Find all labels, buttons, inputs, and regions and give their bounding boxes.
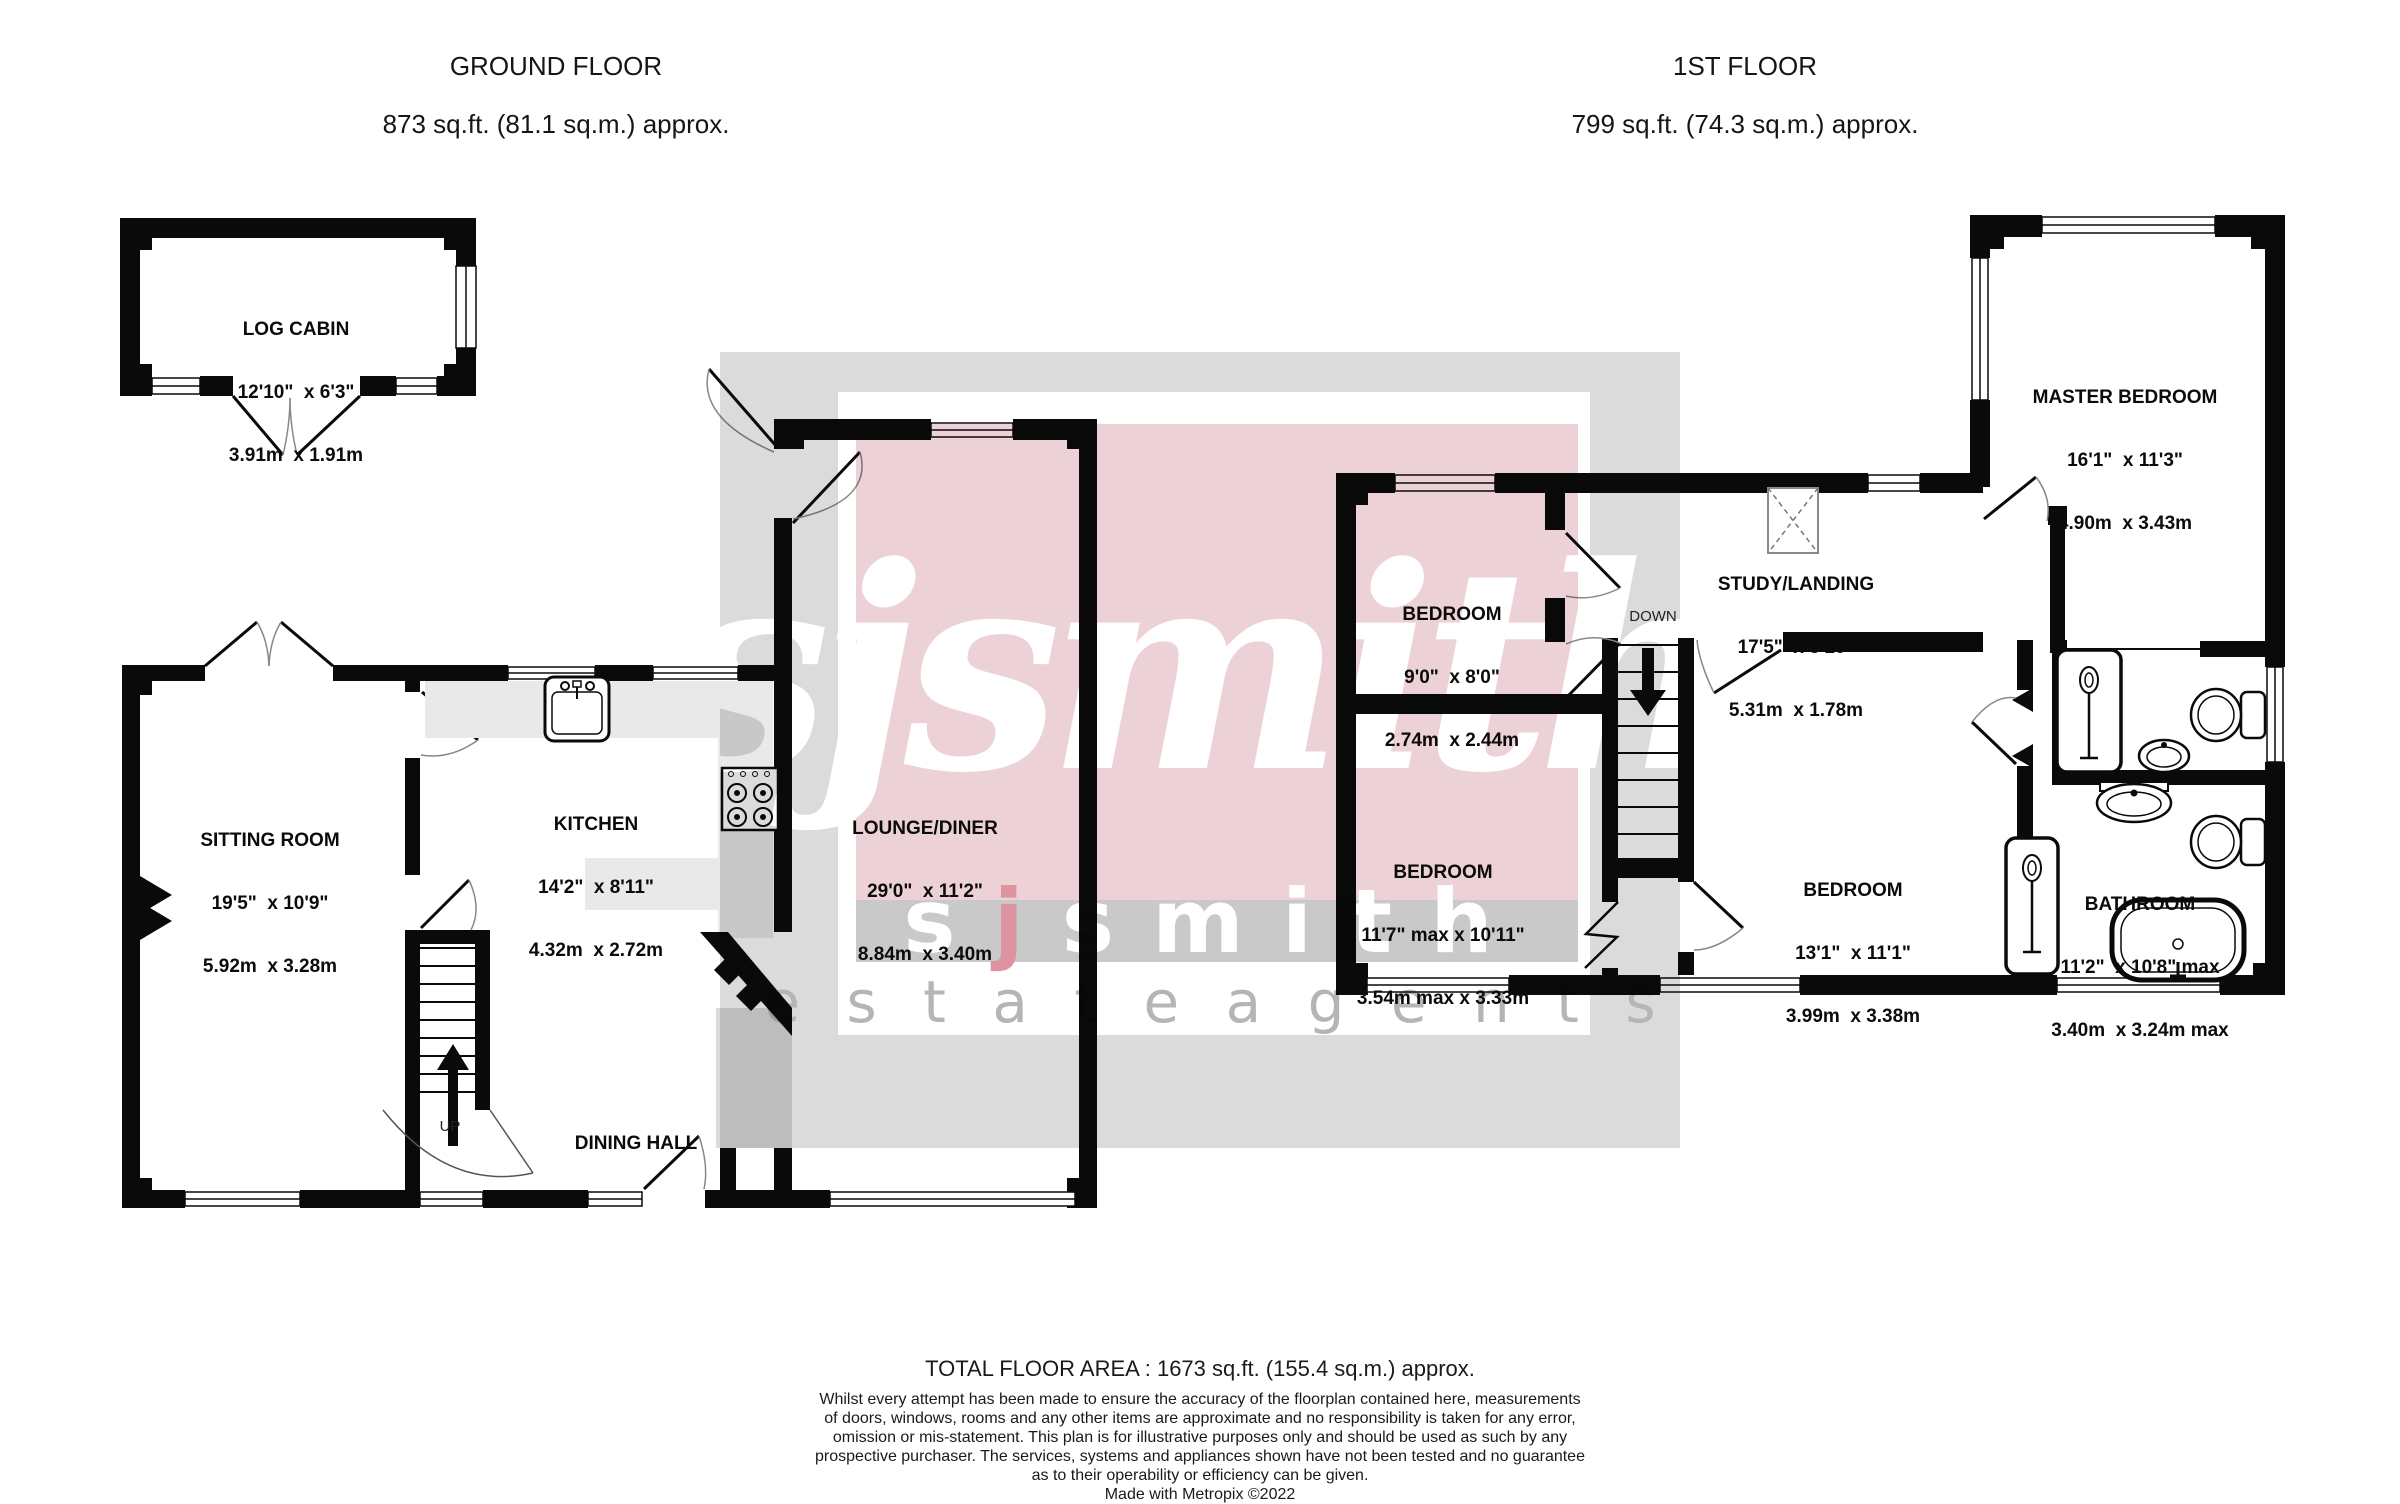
ground-floor-title-area: 873 sq.ft. (81.1 sq.m.) approx. [383,109,730,139]
room-label-bathroom: BATHROOM 11'2" x 10'8" max 3.40m x 3.24m… [2051,852,2228,1062]
room-dims-imperial: 29'0" x 11'2" [852,881,998,902]
room-dims-imperial: 12'10" x 6'3" [229,382,363,403]
first-floor-title: 1ST FLOOR 799 sq.ft. (74.3 sq.m.) approx… [1572,52,1919,139]
room-label-log-cabin: LOG CABIN 12'10" x 6'3" 3.91m x 1.91m [229,277,363,487]
watermark-block-j: j [991,870,1062,973]
room-dims-imperial: 9'0" x 8'0" [1385,667,1519,688]
room-label-kitchen: KITCHEN 14'2" x 8'11" 4.32m x 2.72m [529,772,663,982]
room-dims-metric: 3.54m max x 3.33m [1357,988,1529,1009]
room-dims-imperial: 13'1" x 11'1" [1786,943,1920,964]
room-label-bedroom-1: BEDROOM 9'0" x 8'0" 2.74m x 2.44m [1385,562,1519,772]
disclaimer-line: Whilst every attempt has been made to en… [0,1390,2400,1409]
room-dims-metric: 3.99m x 3.38m [1786,1006,1920,1027]
room-label-dining-hall: DINING HALL [575,1091,697,1175]
ensuite-basin [2139,740,2189,772]
disclaimer-line: omission or mis-statement. This plan is … [0,1428,2400,1447]
room-label-bedroom-2: BEDROOM 11'7" max x 10'11" 3.54m max x 3… [1357,820,1529,1030]
room-dims-imperial: 17'5" x 5'10" [1718,637,1874,658]
room-name: LOG CABIN [229,319,363,340]
room-dims-imperial: 14'2" x 8'11" [529,877,663,898]
room-label-master-bedroom: MASTER BEDROOM 16'1" x 11'3" 4.90m x 3.4… [2033,345,2218,555]
bathroom-pedestal-sink [2097,782,2171,822]
stairs-up-label: UP [440,1118,461,1135]
room-name: LOUNGE/DINER [852,818,998,839]
stairs-down-label: DOWN [1629,608,1677,625]
room-dims-imperial: 16'1" x 11'3" [2033,450,2218,471]
room-name: BEDROOM [1357,862,1529,883]
disclaimer-line: as to their operability or efficiency ca… [0,1466,2400,1485]
disclaimer-line: of doors, windows, rooms and any other i… [0,1409,2400,1428]
chimney-notch [140,876,172,940]
ensuite-shower [2057,650,2121,772]
floorplan-page: sjsmith sjsmith e s t a t e a g e n t s … [0,0,2400,1504]
room-name: SITTING ROOM [200,830,339,851]
room-name: BATHROOM [2051,894,2228,915]
room-dims-metric: 5.31m x 1.78m [1718,700,1874,721]
watermark: sjsmith sjsmith e s t a t e a g e n t s [669,352,1728,1148]
room-label-study-landing: STUDY/LANDING 17'5" x 5'10" 5.31m x 1.78… [1718,532,1874,742]
room-dims-metric: 5.92m x 3.28m [200,956,339,977]
disclaimer-credit: Made with Metropix ©2022 [0,1485,2400,1504]
room-name: MASTER BEDROOM [2033,387,2218,408]
room-label-bedroom-3: BEDROOM 13'1" x 11'1" 3.99m x 3.38m [1786,838,1920,1048]
room-dims-metric: 3.91m x 1.91m [229,445,363,466]
room-dims-imperial: 11'2" x 10'8" max [2051,957,2228,978]
room-name: BEDROOM [1385,604,1519,625]
room-dims-metric: 2.74m x 2.44m [1385,730,1519,751]
ground-floor-title-name: GROUND FLOOR [450,51,662,81]
watermark-script-text: sjsmith [669,506,1728,835]
total-floor-area: TOTAL FLOOR AREA : 1673 sq.ft. (155.4 sq… [0,1356,2400,1382]
room-name: STUDY/LANDING [1718,574,1874,595]
room-name: BEDROOM [1786,880,1920,901]
ground-floor-title: GROUND FLOOR 873 sq.ft. (81.1 sq.m.) app… [383,52,730,139]
room-name: DINING HALL [575,1133,697,1154]
room-label-lounge-diner: LOUNGE/DINER 29'0" x 11'2" 8.84m x 3.40m [852,776,998,986]
room-dims-metric: 8.84m x 3.40m [852,944,998,965]
room-name: KITCHEN [529,814,663,835]
disclaimer: Whilst every attempt has been made to en… [0,1390,2400,1504]
room-dims-metric: 4.90m x 3.43m [2033,513,2218,534]
bathroom-shower [2006,838,2058,974]
first-floor-title-name: 1ST FLOOR [1673,51,1817,81]
disclaimer-line: prospective purchaser. The services, sys… [0,1447,2400,1466]
floorplan-drawing: sjsmith sjsmith e s t a t e a g e n t s [0,0,2400,1504]
first-floor-title-area: 799 sq.ft. (74.3 sq.m.) approx. [1572,109,1919,139]
room-dims-imperial: 19'5" x 10'9" [200,893,339,914]
ensuite-toilet [2191,689,2265,741]
room-dims-metric: 4.32m x 2.72m [529,940,663,961]
bathroom-door-jambs [2012,688,2033,768]
room-dims-imperial: 11'7" max x 10'11" [1357,925,1529,946]
room-label-sitting-room: SITTING ROOM 19'5" x 10'9" 5.92m x 3.28m [200,788,339,998]
room-dims-metric: 3.40m x 3.24m max [2051,1020,2228,1041]
kitchen-sink [545,677,609,741]
